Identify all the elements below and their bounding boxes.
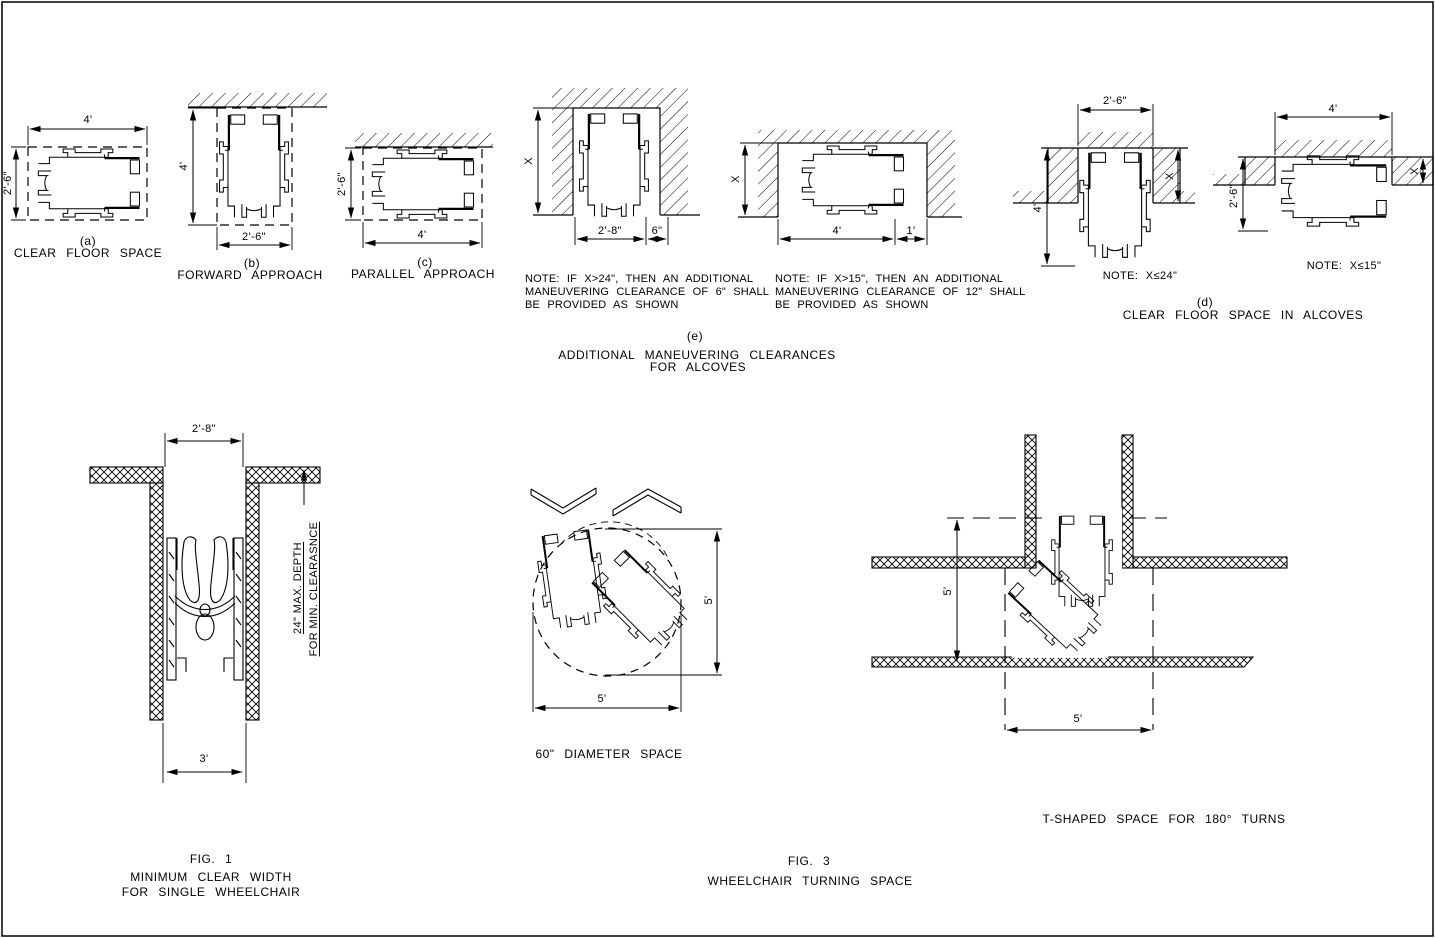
figure-caption-fig1-line1: MINIMUM CLEAR WIDTH xyxy=(130,871,292,883)
figure-3-circle-drawing xyxy=(531,488,722,712)
dim-label-e1-extra: 6" xyxy=(652,225,663,237)
dim-label-c-width: 4' xyxy=(417,229,426,241)
dim-label-circle-h: 5' xyxy=(597,693,606,705)
note-d2: NOTE: X≤15" xyxy=(1307,260,1382,272)
figure-caption-e-line2: FOR ALCOVES xyxy=(650,361,746,373)
dim-label-d2-x: X xyxy=(1409,167,1421,175)
note-e2-line3: BE PROVIDED AS SHOWN xyxy=(775,299,929,312)
depth-note-line2: FOR MIN. CLEARASNCE xyxy=(308,522,320,657)
figure-tag-fig3: FIG. 3 xyxy=(788,855,830,867)
figure-e1-drawing xyxy=(533,88,700,245)
dim-label-d1-height: 4' xyxy=(1032,203,1044,212)
drawing-sheet: 4' 2'-6" (a) CLEAR FLOOR SPACE 4' 2'-6" … xyxy=(0,0,1435,938)
dim-label-e1-x: X xyxy=(523,157,535,165)
dim-label-d2-width: 4' xyxy=(1328,103,1337,115)
dim-label-d1-width: 2'-6" xyxy=(1103,95,1127,107)
dim-label-circle-v: 5' xyxy=(703,595,715,604)
figure-d1-drawing xyxy=(1013,104,1195,266)
note-e2-line1: NOTE: IF X>15", THEN AN ADDITIONAL xyxy=(775,273,1003,286)
dim-label-e2-extra: 1' xyxy=(906,225,915,237)
drawing-canvas xyxy=(0,0,1435,938)
dim-label-e2-width: 4' xyxy=(832,225,841,237)
figure-a-drawing xyxy=(11,126,147,220)
depth-note-line1: 24" MAX. DEPTH xyxy=(292,542,304,634)
dim-label-d2-height: 2'-6" xyxy=(1228,184,1240,208)
dim-label-b-height: 4' xyxy=(178,161,190,170)
dim-label-d1-x: X xyxy=(1164,172,1176,180)
figure-tag-d: (d) xyxy=(1197,296,1213,308)
dim-label-fig1-top: 2'-8" xyxy=(192,423,216,435)
dim-label-tshape-v: 5' xyxy=(942,586,954,595)
figure-caption-fig3: WHEELCHAIR TURNING SPACE xyxy=(708,875,913,887)
note-e1-line3: BE PROVIDED AS SHOWN xyxy=(525,299,679,312)
note-e2-line2: MANEUVERING CLEARANCE OF 12" SHALL xyxy=(775,286,1025,299)
note-e1-line2: MANEUVERING CLEARANCE OF 6" SHALL xyxy=(525,286,769,299)
figure-b-drawing xyxy=(188,93,327,250)
figure-1-drawing xyxy=(90,433,320,783)
figure-caption-c: PARALLEL APPROACH xyxy=(351,268,495,280)
figure-caption-a: CLEAR FLOOR SPACE xyxy=(14,247,162,259)
figure-3-tshape-drawing xyxy=(872,435,1287,730)
note-d1: NOTE: X≤24" xyxy=(1103,270,1178,282)
dim-label-a-height: 2'-6" xyxy=(2,171,14,195)
dim-label-b-width: 2'-6" xyxy=(242,231,266,243)
dim-label-c-height: 2'-6" xyxy=(336,172,348,196)
figure-d2-drawing xyxy=(1213,112,1433,231)
figure-caption-tshape: T-SHAPED SPACE FOR 180° TURNS xyxy=(1043,813,1286,825)
figure-e2-drawing xyxy=(738,130,962,245)
dim-label-a-width: 4' xyxy=(83,114,92,126)
figure-tag-fig1: FIG. 1 xyxy=(190,853,232,865)
dim-label-e1-width: 2'-8" xyxy=(598,225,622,237)
figure-caption-circle: 60" DIAMETER SPACE xyxy=(535,748,682,760)
figure-caption-fig1-line2: FOR SINGLE WHEELCHAIR xyxy=(122,886,301,898)
figure-tag-e: (e) xyxy=(687,330,703,342)
dim-label-tshape-h: 5' xyxy=(1073,713,1082,725)
dim-label-e2-x: X xyxy=(730,175,742,183)
note-e1-line1: NOTE: IF X>24", THEN AN ADDITIONAL xyxy=(525,273,753,286)
figure-caption-d: CLEAR FLOOR SPACE IN ALCOVES xyxy=(1123,309,1364,321)
figure-caption-b: FORWARD APPROACH xyxy=(177,269,322,281)
dim-label-fig1-bottom: 3' xyxy=(199,753,208,765)
